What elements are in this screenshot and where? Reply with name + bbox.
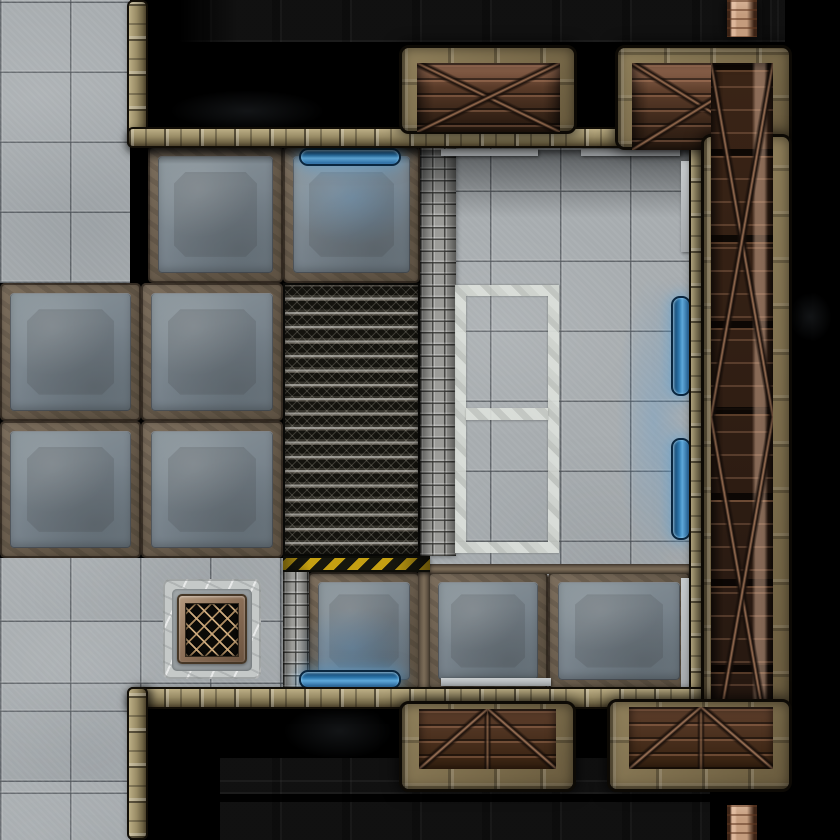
door-bar[interactable] <box>581 149 680 156</box>
floor-tiles-west-edge[interactable] <box>0 688 130 840</box>
floor-panel[interactable] <box>148 146 283 283</box>
floor-panel[interactable] <box>141 421 283 558</box>
wall <box>127 0 148 148</box>
floor-panel[interactable] <box>548 572 690 690</box>
hazard-stripe <box>283 556 430 572</box>
floor-panel[interactable] <box>428 572 548 690</box>
floor-marking-divider <box>466 408 548 420</box>
map-canvas <box>0 0 840 840</box>
bridge-planks[interactable] <box>417 63 560 132</box>
bridge-planks[interactable] <box>419 709 556 769</box>
wall-shadow <box>420 150 692 218</box>
door-bar[interactable] <box>681 161 689 252</box>
walkway-planks[interactable] <box>711 63 773 772</box>
void-floor-tiles-north <box>148 0 785 42</box>
floor-grate[interactable] <box>185 603 239 657</box>
walkway-planks[interactable] <box>629 707 773 769</box>
door-bar[interactable] <box>441 149 538 156</box>
void-fade-northwest <box>148 0 238 44</box>
energy-door[interactable] <box>299 148 401 166</box>
door-bar[interactable] <box>441 678 551 686</box>
floor-panel[interactable] <box>141 283 283 421</box>
floor-panel[interactable] <box>0 283 141 421</box>
floor-tiles-northwest[interactable] <box>0 0 130 283</box>
plank-strip-north[interactable] <box>727 0 757 37</box>
mesh-catwalk[interactable] <box>283 283 420 556</box>
energy-door[interactable] <box>671 438 691 540</box>
energy-door[interactable] <box>671 296 691 396</box>
door-bar[interactable] <box>681 578 689 688</box>
panel-frame-strip <box>418 572 430 690</box>
plank-strip-south[interactable] <box>727 805 757 840</box>
floor-panel[interactable] <box>0 421 141 558</box>
wall <box>127 687 148 840</box>
